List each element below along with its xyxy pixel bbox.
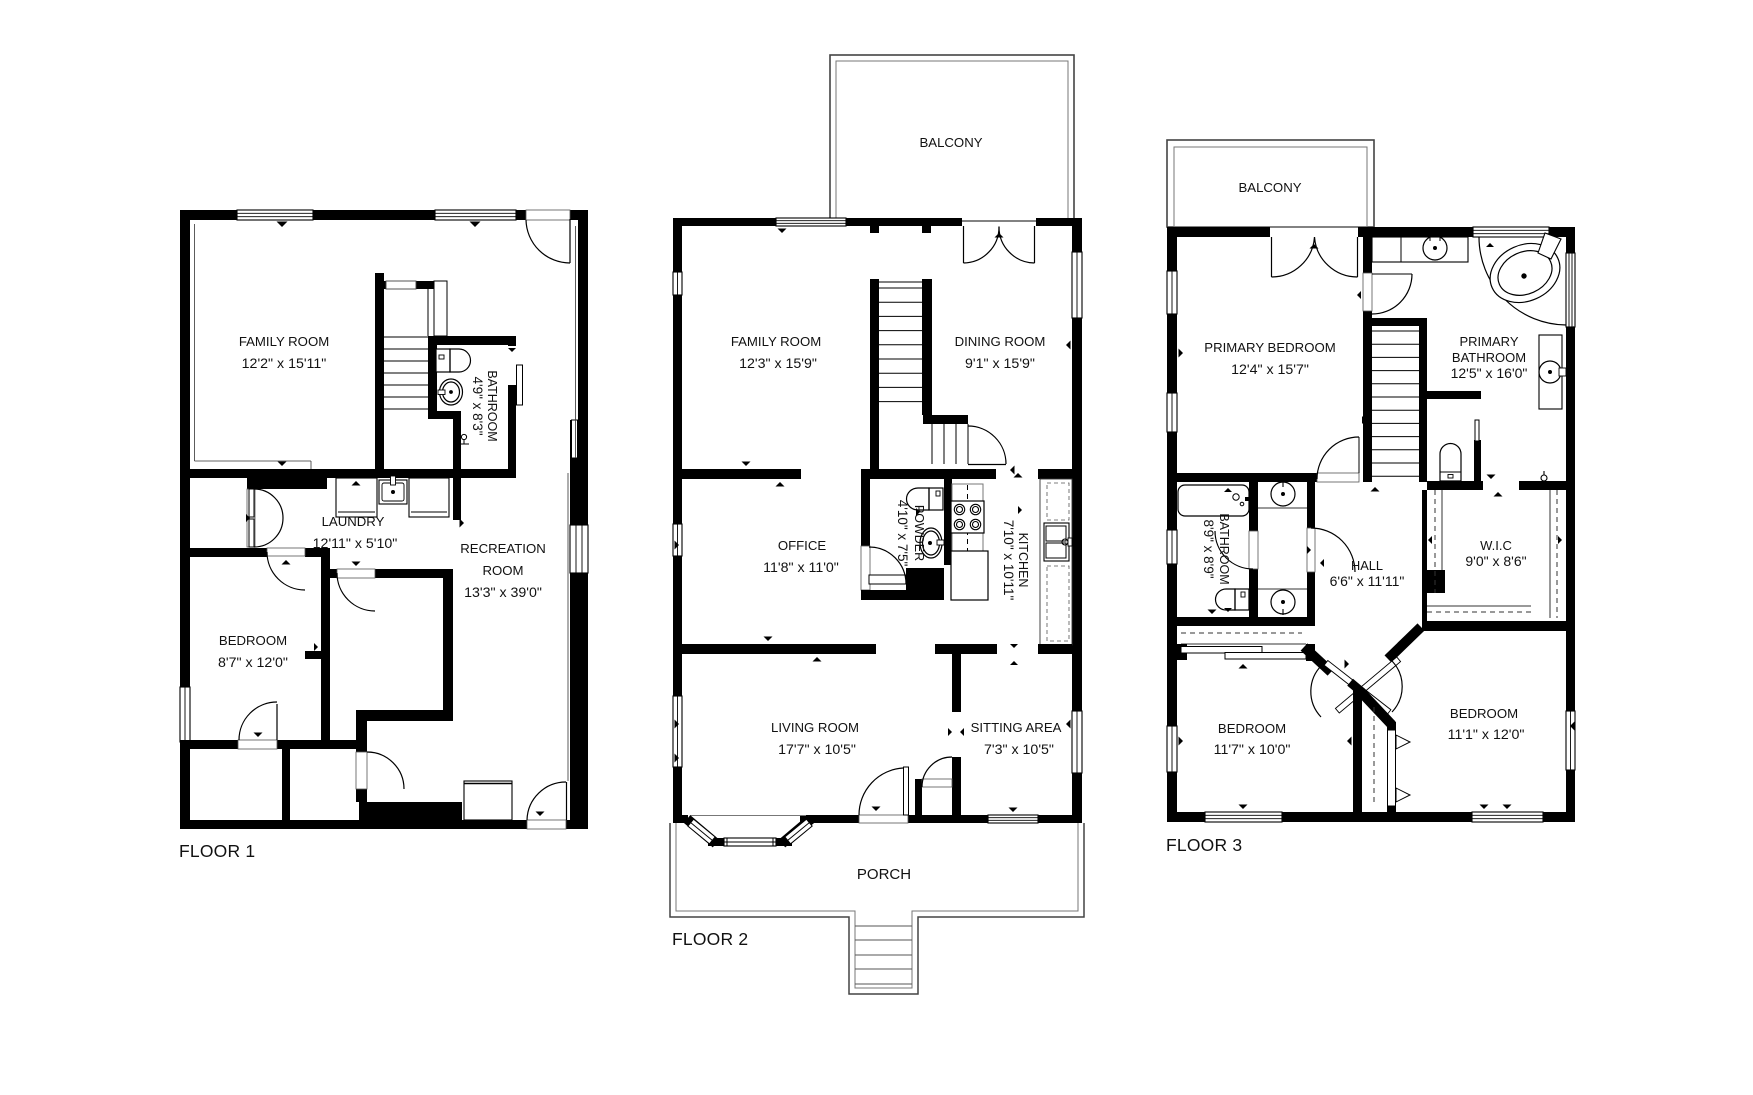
svg-text:12'2" x 15'11": 12'2" x 15'11" (242, 356, 327, 372)
svg-text:BATHROOM: BATHROOM (1452, 350, 1526, 365)
svg-text:BALCONY: BALCONY (1238, 180, 1301, 195)
svg-text:BATHROOM: BATHROOM (1217, 513, 1231, 584)
svg-text:7'3" x 10'5": 7'3" x 10'5" (984, 742, 1054, 758)
svg-text:9'1" x 15'9": 9'1" x 15'9" (965, 356, 1035, 372)
svg-text:DINING ROOM: DINING ROOM (955, 334, 1046, 349)
svg-text:PORCH: PORCH (857, 866, 911, 883)
svg-text:8'7" x 12'0": 8'7" x 12'0" (218, 655, 288, 671)
svg-text:12'5" x 16'0": 12'5" x 16'0" (1451, 365, 1528, 381)
svg-text:HALL: HALL (1351, 558, 1383, 573)
svg-text:FLOOR 2: FLOOR 2 (672, 929, 748, 949)
svg-text:W.I.C: W.I.C (1480, 538, 1512, 553)
svg-text:4'9" x 8'3": 4'9" x 8'3" (470, 376, 485, 435)
svg-text:PRIMARY: PRIMARY (1460, 334, 1519, 349)
svg-text:POWDER: POWDER (912, 505, 926, 561)
svg-text:11'8" x 11'0": 11'8" x 11'0" (763, 560, 839, 576)
svg-text:KITCHEN: KITCHEN (1016, 533, 1030, 588)
svg-text:PRIMARY BEDROOM: PRIMARY BEDROOM (1204, 340, 1335, 355)
svg-text:OFFICE: OFFICE (778, 538, 827, 553)
svg-text:BEDROOM: BEDROOM (1218, 721, 1286, 736)
svg-text:LAUNDRY: LAUNDRY (322, 514, 385, 529)
svg-text:FAMILY ROOM: FAMILY ROOM (731, 334, 821, 349)
svg-text:12'4" x 15'7": 12'4" x 15'7" (1231, 362, 1309, 378)
svg-text:FLOOR 3: FLOOR 3 (1166, 835, 1242, 855)
svg-text:4'10" x 7'5": 4'10" x 7'5" (895, 500, 910, 567)
svg-text:FAMILY ROOM: FAMILY ROOM (239, 334, 329, 349)
svg-text:BALCONY: BALCONY (919, 135, 982, 150)
svg-text:BEDROOM: BEDROOM (1450, 706, 1518, 721)
svg-text:ROOM: ROOM (482, 563, 523, 578)
svg-text:9'0" x 8'6": 9'0" x 8'6" (1465, 553, 1526, 569)
svg-text:RECREATION: RECREATION (460, 541, 545, 556)
svg-text:11'1" x 12'0": 11'1" x 12'0" (1448, 727, 1525, 743)
svg-text:7'10" x 10'11": 7'10" x 10'11" (1001, 520, 1016, 601)
svg-text:11'7" x 10'0": 11'7" x 10'0" (1214, 742, 1291, 758)
svg-text:BEDROOM: BEDROOM (219, 633, 287, 648)
svg-text:6'6" x 11'11": 6'6" x 11'11" (1330, 573, 1405, 589)
svg-text:SITTING AREA: SITTING AREA (971, 720, 1062, 735)
svg-text:12'3" x 15'9": 12'3" x 15'9" (739, 356, 817, 372)
svg-text:FLOOR 1: FLOOR 1 (179, 841, 255, 861)
svg-text:8'9" x 8'9": 8'9" x 8'9" (1201, 519, 1216, 578)
svg-text:17'7" x 10'5": 17'7" x 10'5" (778, 742, 856, 758)
svg-text:13'3" x 39'0": 13'3" x 39'0" (464, 585, 542, 601)
svg-text:BATHROOM: BATHROOM (485, 370, 499, 441)
svg-text:LIVING ROOM: LIVING ROOM (771, 720, 859, 735)
